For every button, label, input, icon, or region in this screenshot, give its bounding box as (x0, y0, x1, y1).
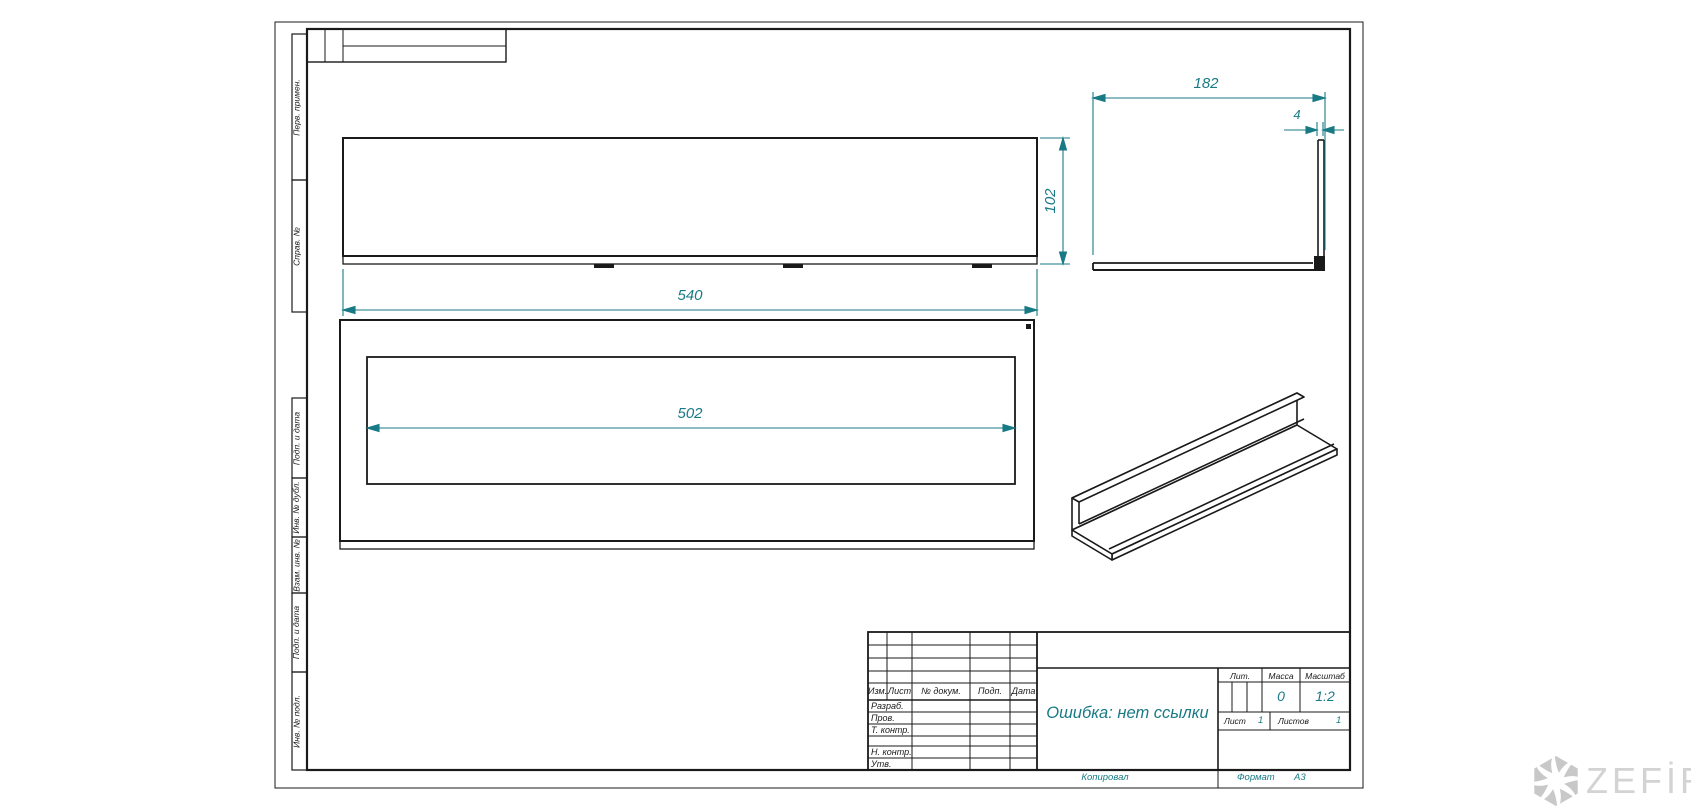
margin-label-inv-dubl: Инв. № дубл. (292, 478, 307, 537)
revision-header-izm: Изм. (868, 687, 887, 696)
margin-label-podp-data-1: Подп. и дата (292, 398, 307, 478)
drawing-sheet: Перв. примен. Справ. № Подп. и дата Инв.… (0, 0, 1691, 810)
role-tkontr: Т. контр. (871, 726, 910, 735)
plan-view (340, 320, 1034, 549)
margin-label-sprav-no: Справ. № (292, 180, 307, 312)
role-utv: Утв. (871, 760, 891, 769)
margin-label-vzam-inv: Взам. инв. № (292, 537, 307, 593)
copied-by-label: Копировал (1055, 773, 1155, 783)
isometric-view (1072, 393, 1337, 560)
revision-header-podp: Подп. (970, 687, 1010, 696)
dim-side-depth: 182 (1176, 76, 1236, 91)
doc-title: Ошибка: нет ссылки (1040, 705, 1215, 722)
margin-label-podp-data-2: Подп. и дата (292, 593, 307, 672)
sheet-value: 1 (1258, 716, 1263, 726)
dim-opening-width: 502 (660, 406, 720, 421)
zefire-logo-icon (1528, 753, 1585, 810)
revision-header-list: Лист (887, 687, 912, 696)
lit-label: Лит. (1218, 672, 1262, 681)
dim-front-width: 540 (660, 288, 720, 303)
margin-label-perv-primen: Перв. примен. (292, 34, 307, 180)
revision-header-docnum: № докум. (912, 687, 970, 696)
role-prov: Пров. (871, 714, 895, 723)
drawing-geometry (0, 0, 1691, 810)
role-nkontr: Н. контр. (871, 748, 912, 757)
zefire-logo-text: ZEFİRE (1586, 763, 1691, 799)
format-label: Формат (1237, 773, 1275, 783)
scale-label: Масштаб (1300, 672, 1350, 681)
corner-table (307, 29, 506, 62)
sheet-frame (275, 22, 1363, 788)
mass-label: Масса (1262, 672, 1300, 681)
vent-hole-mark (1026, 324, 1031, 329)
role-razrab: Разраб. (871, 702, 904, 711)
dim-wall-thickness: 4 (1284, 108, 1310, 121)
dim-front-height: 102 (1043, 137, 1059, 265)
side-view (1093, 140, 1325, 270)
sheet-label: Лист (1224, 717, 1246, 726)
sheets-value: 1 (1336, 716, 1341, 726)
dimension-lines (343, 92, 1344, 432)
sheets-label: Листов (1278, 717, 1309, 726)
margin-label-inv-podl: Инв. № подл. (292, 672, 307, 770)
scale-value: 1:2 (1300, 689, 1350, 703)
mass-value: 0 (1262, 689, 1300, 703)
revision-header-data: Дата (1010, 687, 1037, 696)
format-value: А3 (1294, 773, 1306, 783)
front-view (343, 138, 1037, 268)
